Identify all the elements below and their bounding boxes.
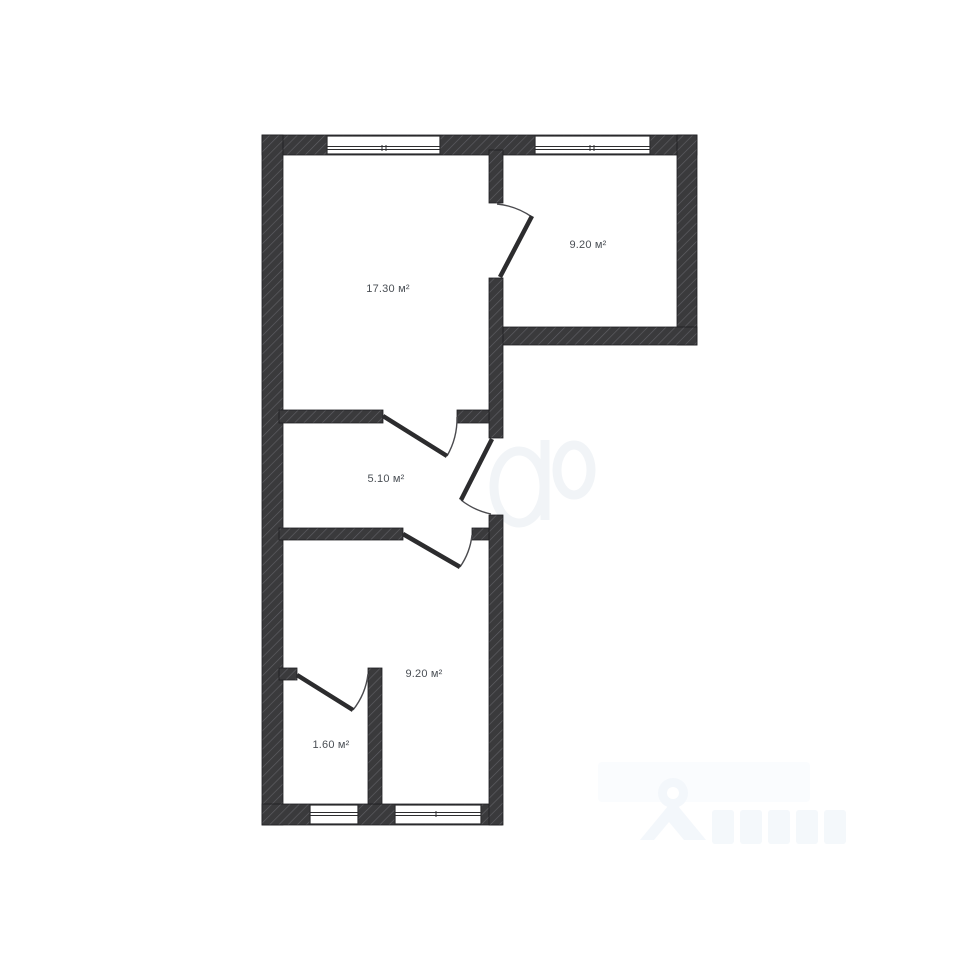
door-storage bbox=[297, 674, 368, 710]
wall-hallway-top bbox=[279, 410, 383, 423]
room-label-storage: 1.60 м² bbox=[312, 739, 349, 751]
walls bbox=[262, 135, 697, 825]
wall-right-upper-exterior bbox=[677, 135, 697, 345]
wall-storage-stub bbox=[279, 668, 297, 680]
door-topright-room bbox=[497, 204, 532, 277]
door-livingroom-hallway bbox=[383, 416, 457, 456]
floorplan-canvas: 17.30 м² 9.20 м² 5.10 м² 9.20 м² 1.60 м² bbox=[0, 0, 960, 960]
wall-spine-upper bbox=[489, 150, 503, 203]
wall-hallway-bottom bbox=[279, 528, 403, 540]
wall-spine-lower bbox=[489, 515, 503, 825]
room-label-hallway: 5.10 м² bbox=[367, 473, 404, 485]
window-top-left bbox=[327, 136, 440, 154]
room-label-living-room: 17.30 м² bbox=[366, 283, 410, 295]
window-top-right bbox=[535, 136, 650, 154]
watermark-bottom-right bbox=[598, 762, 846, 844]
wall-hallway-top-stub bbox=[457, 410, 489, 423]
room-label-bottom-room: 9.20 м² bbox=[405, 668, 442, 680]
wall-left-exterior bbox=[262, 135, 283, 825]
window-bottom-right bbox=[395, 805, 481, 824]
room-label-top-right: 9.20 м² bbox=[569, 239, 606, 251]
watermark-text bbox=[712, 810, 846, 844]
watermark-center bbox=[494, 440, 591, 523]
wall-spine-middle bbox=[489, 278, 503, 438]
wall-storage-vertical bbox=[368, 668, 382, 804]
watermark-backdrop bbox=[598, 762, 810, 802]
door-hallway-bottomroom bbox=[403, 534, 472, 567]
floorplan-drawing: 17.30 м² 9.20 м² 5.10 м² 9.20 м² 1.60 м² bbox=[0, 0, 960, 960]
door-entrance bbox=[461, 439, 492, 514]
window-bottom-left bbox=[310, 805, 358, 824]
wall-hallway-bottom-stub bbox=[472, 528, 489, 540]
wall-topright-room-bottom bbox=[502, 327, 697, 345]
